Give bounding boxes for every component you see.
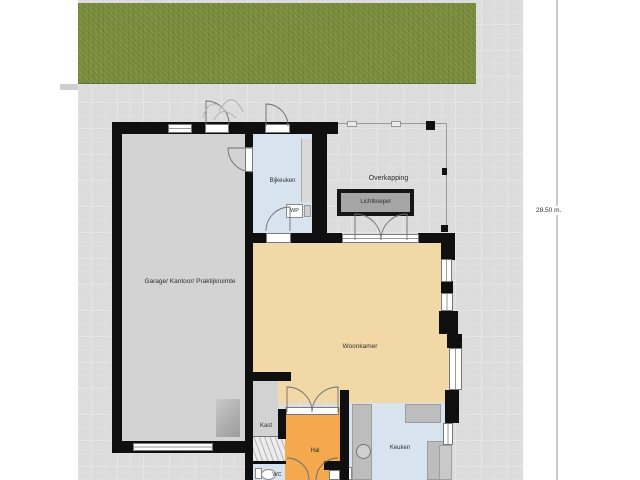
wall-right — [441, 233, 455, 260]
wp-label: WP — [290, 208, 299, 214]
dimension-line — [556, 0, 558, 480]
window-right — [441, 259, 452, 282]
wall-right — [445, 390, 459, 423]
window-right — [441, 293, 453, 311]
door-frame-hal-bottom — [329, 470, 340, 480]
wc-label: WC — [269, 471, 285, 480]
french-door-frame — [342, 234, 419, 243]
door-frame-garage — [245, 147, 253, 172]
kitchen-sink — [356, 444, 371, 459]
wall-keuken-right — [439, 445, 452, 480]
roof-tie — [347, 121, 357, 127]
window-right — [449, 348, 462, 390]
wall-woonkamer-top — [290, 233, 342, 243]
wall-wc-top — [248, 461, 286, 464]
kitchen-counter-top — [405, 404, 441, 423]
kast-label: Kast — [251, 423, 281, 430]
wall-bijkeuken-right — [312, 134, 327, 243]
garage-workbench — [216, 399, 240, 437]
room-garage — [122, 134, 245, 441]
porch-post — [441, 225, 448, 232]
bijkeuken-counter — [301, 139, 312, 202]
door-frame-top — [205, 124, 229, 133]
window-keuken — [443, 423, 453, 445]
wall-right — [439, 311, 458, 334]
wall-right — [447, 334, 462, 348]
window-top — [168, 124, 192, 133]
wall-left — [112, 122, 122, 453]
lot-edge-step — [60, 84, 78, 90]
wall-kast-top — [245, 372, 291, 381]
window-garage-bottom — [133, 443, 213, 451]
wall-right — [441, 281, 453, 293]
garage-label: Garage/ Kantoor/ Praktijkruimte — [120, 277, 260, 286]
overkapping-label: Overkapping — [330, 174, 447, 183]
floor-plan: Overkapping Lichtkoepel WP MV — [0, 0, 640, 480]
door-frame-top — [265, 124, 290, 133]
grass-area — [78, 3, 476, 84]
dimension-label: 28.50 m. — [534, 206, 563, 215]
door-frame-hal — [286, 407, 339, 415]
staircase — [248, 436, 286, 463]
woonkamer-label: Woonkamer — [310, 342, 410, 351]
hal-label: Hal — [300, 448, 330, 455]
lichtkoepel-skylight: Lichtkoepel — [337, 189, 414, 216]
wall-hal-bottom — [324, 461, 342, 470]
keuken-label: Keuken — [375, 445, 425, 452]
roof-tie — [391, 121, 401, 127]
equipment-unit — [304, 205, 311, 217]
door-frame-bijkeuken — [266, 233, 291, 243]
heat-pump-box: WP — [286, 204, 303, 218]
porch-post — [426, 121, 435, 130]
kitchen-counter-left — [352, 404, 372, 480]
lichtkoepel-label: Lichtkoepel — [360, 199, 390, 206]
wall-woonkamer-top — [245, 233, 267, 243]
bijkeuken-label: Bijkeuken — [253, 178, 312, 185]
